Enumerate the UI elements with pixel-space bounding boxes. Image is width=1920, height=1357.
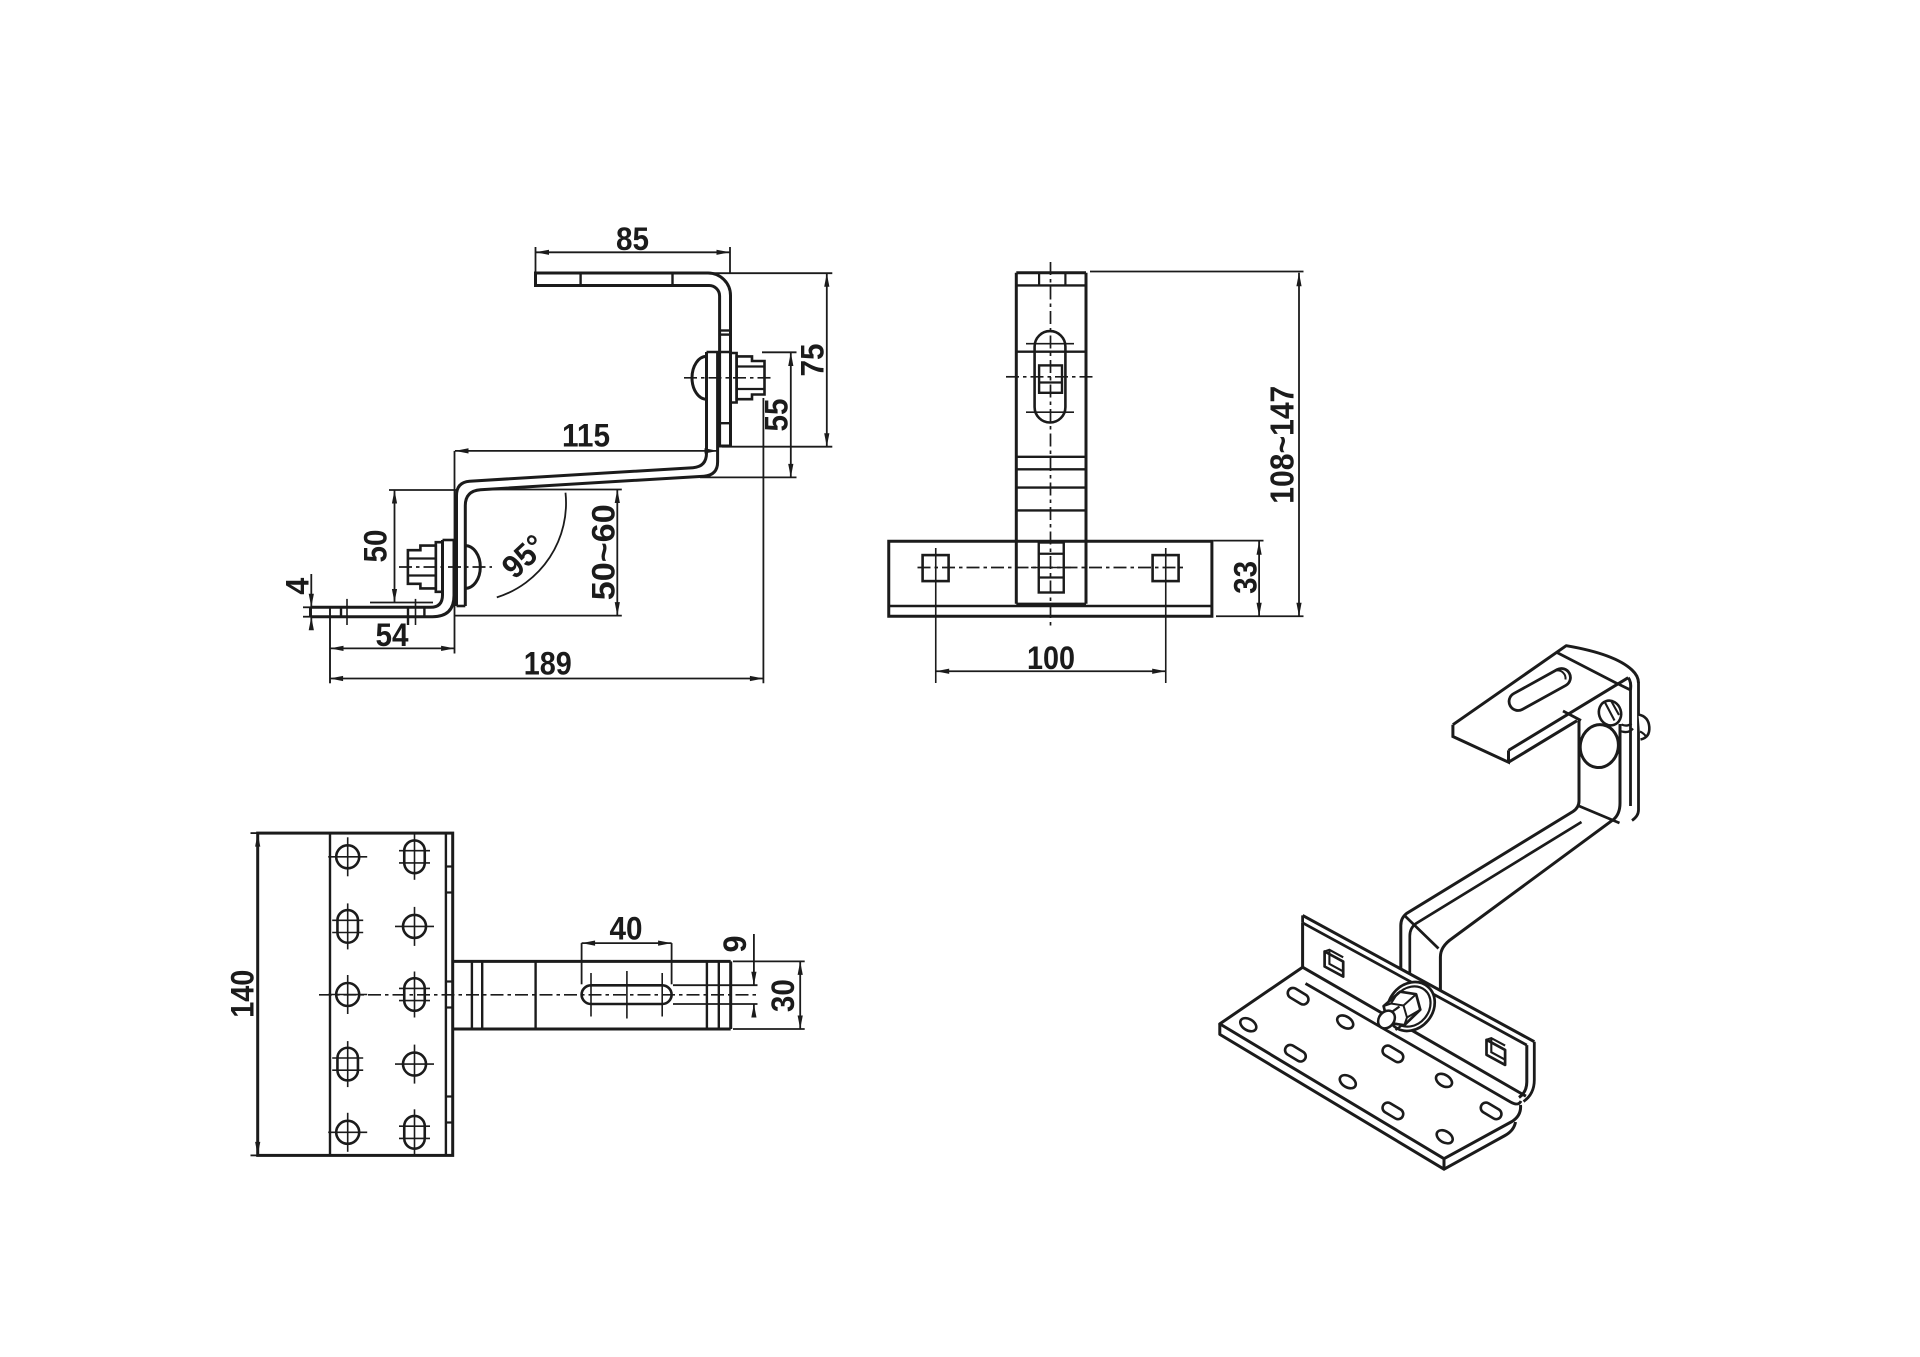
- svg-text:100: 100: [1027, 640, 1075, 676]
- svg-text:75: 75: [795, 344, 831, 377]
- svg-text:50~60: 50~60: [585, 504, 621, 600]
- svg-text:9: 9: [717, 936, 753, 953]
- svg-text:30: 30: [765, 979, 801, 1012]
- svg-text:95°: 95°: [495, 528, 553, 586]
- svg-text:4: 4: [279, 578, 315, 595]
- svg-text:85: 85: [616, 221, 649, 257]
- svg-text:115: 115: [562, 418, 610, 454]
- svg-text:40: 40: [610, 911, 643, 947]
- svg-text:108~147: 108~147: [1264, 386, 1301, 504]
- svg-text:140: 140: [224, 970, 260, 1018]
- svg-text:50: 50: [358, 530, 394, 563]
- svg-text:33: 33: [1228, 561, 1264, 594]
- svg-text:189: 189: [524, 646, 572, 682]
- svg-text:54: 54: [376, 617, 409, 653]
